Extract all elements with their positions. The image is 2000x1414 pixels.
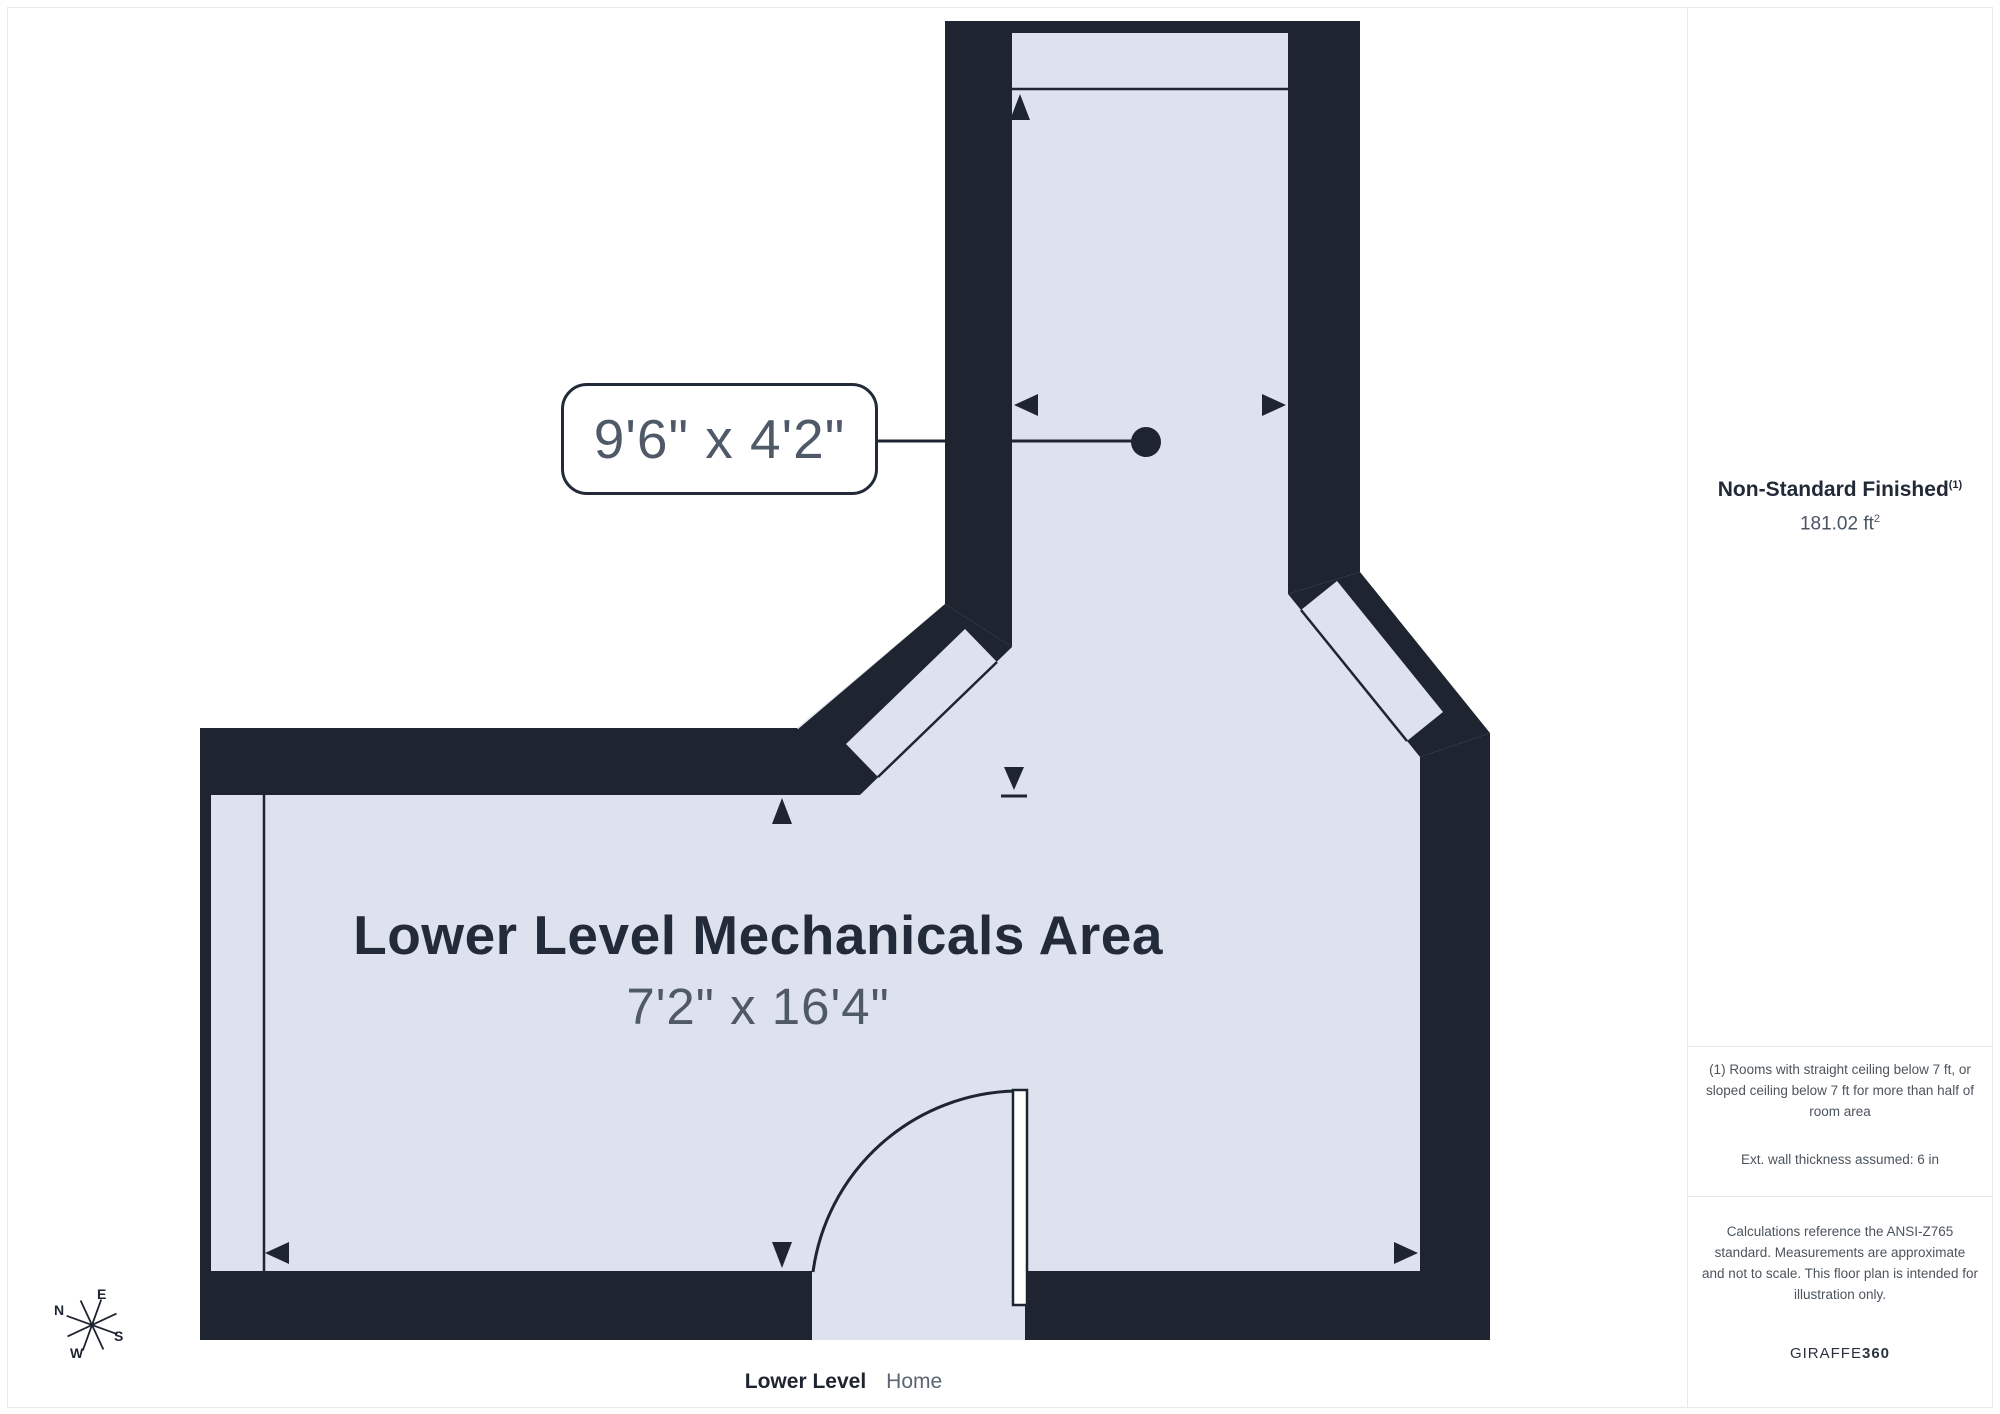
compass-south-label: S: [114, 1328, 123, 1344]
footnote-wall-thickness: Ext. wall thickness assumed: 6 in: [1702, 1150, 1978, 1171]
right-wall: [1420, 733, 1490, 1340]
area-title-text: Non-Standard Finished: [1718, 478, 1949, 501]
bottom-wall-left: [200, 1271, 812, 1340]
room-name-label: Lower Level Mechanicals Area: [58, 903, 1458, 967]
corridor-left-wall: [945, 21, 1012, 647]
callout-anchor-dot: [1131, 427, 1161, 457]
compass-east-label: E: [97, 1286, 106, 1302]
compass-north-label: N: [54, 1302, 64, 1318]
sidebar-divider: [1687, 8, 1688, 1407]
main-top-wall: [200, 728, 860, 795]
sidebar-section-divider-top: [1687, 1046, 1993, 1047]
sidebar-section-divider-bottom: [1687, 1196, 1993, 1197]
area-title-footnote-marker: (1): [1949, 479, 1962, 491]
bottom-wall-right: [1025, 1271, 1490, 1340]
area-value: 181.02 ft2: [1687, 513, 1993, 535]
level-option-home[interactable]: Home: [886, 1370, 942, 1394]
dimension-callout: 9'6" x 4'2": [561, 383, 878, 495]
level-switcher: Lower Level Home: [0, 1370, 1687, 1394]
area-value-text: 181.02 ft: [1800, 513, 1874, 534]
disclaimer-text: Calculations reference the ANSI-Z765 sta…: [1702, 1222, 1978, 1306]
corridor-top-wall: [945, 21, 1360, 33]
room-dimensions-label: 7'2" x 16'4": [58, 977, 1458, 1036]
compass-star: [67, 1300, 118, 1351]
level-current-lower-level[interactable]: Lower Level: [745, 1370, 866, 1394]
area-title: Non-Standard Finished(1): [1687, 478, 1993, 502]
giraffe360-logo: GIRAFFE360: [1687, 1345, 1993, 1362]
brand-name-bold: 360: [1862, 1345, 1890, 1362]
floorplan-drawing: [0, 0, 2000, 1414]
brand-name-regular: GIRAFFE: [1790, 1345, 1862, 1362]
compass-west-label: W: [70, 1345, 83, 1361]
footnote-ceiling-rule: (1) Rooms with straight ceiling below 7 …: [1702, 1060, 1978, 1123]
door-panel: [1013, 1090, 1027, 1305]
callout-text: 9'6" x 4'2": [594, 407, 845, 471]
area-value-superscript: 2: [1874, 513, 1880, 525]
area-summary: Non-Standard Finished(1) 181.02 ft2: [1687, 478, 1993, 535]
corridor-right-wall: [1288, 21, 1360, 594]
